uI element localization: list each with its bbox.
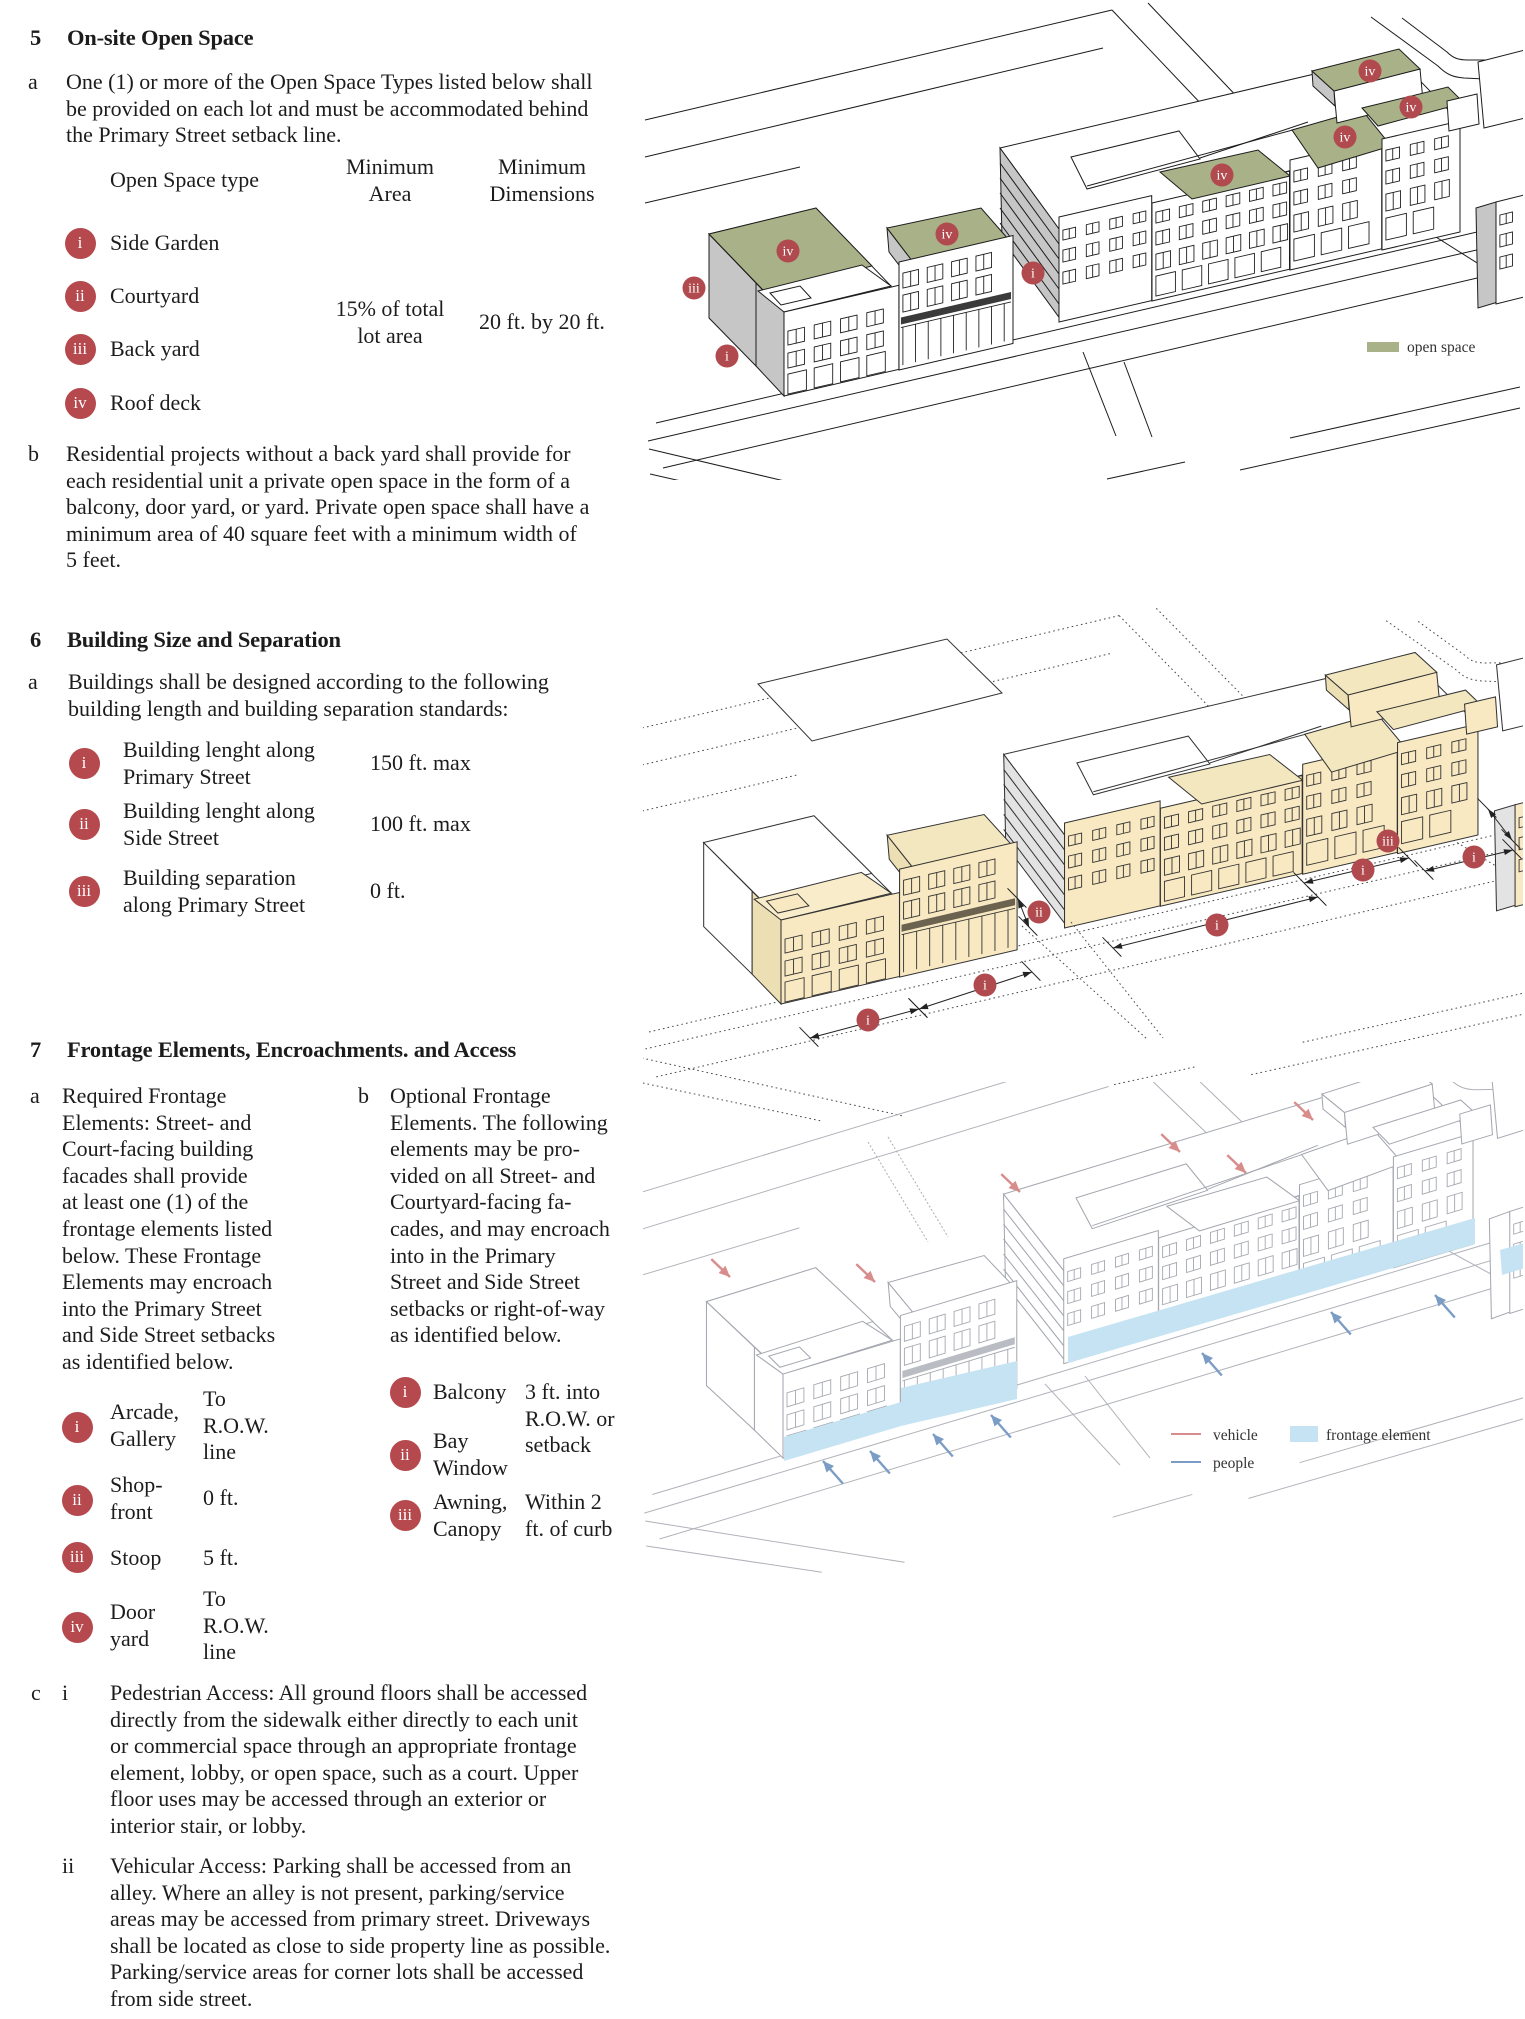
svg-text:i: i <box>725 350 729 365</box>
svg-text:iv: iv <box>1365 65 1376 80</box>
svg-text:i: i <box>983 979 987 994</box>
svg-text:iv: iv <box>783 245 794 260</box>
svg-text:iii: iii <box>1382 835 1394 850</box>
svg-text:i: i <box>1031 267 1035 282</box>
svg-text:iv: iv <box>1340 131 1351 146</box>
svg-text:i: i <box>1361 864 1365 879</box>
svg-text:ii: ii <box>1035 906 1043 921</box>
svg-text:i: i <box>1215 919 1219 934</box>
svg-text:iv: iv <box>942 228 953 243</box>
svg-text:frontage element: frontage element <box>1326 1427 1431 1444</box>
svg-text:i: i <box>1472 851 1476 866</box>
svg-text:vehicle: vehicle <box>1213 1427 1258 1444</box>
svg-text:open space: open space <box>1407 339 1476 356</box>
svg-text:people: people <box>1213 1455 1254 1472</box>
svg-text:iv: iv <box>1406 101 1417 116</box>
svg-text:iv: iv <box>1217 169 1228 184</box>
svg-text:i: i <box>866 1014 870 1029</box>
svg-text:iii: iii <box>688 282 700 297</box>
